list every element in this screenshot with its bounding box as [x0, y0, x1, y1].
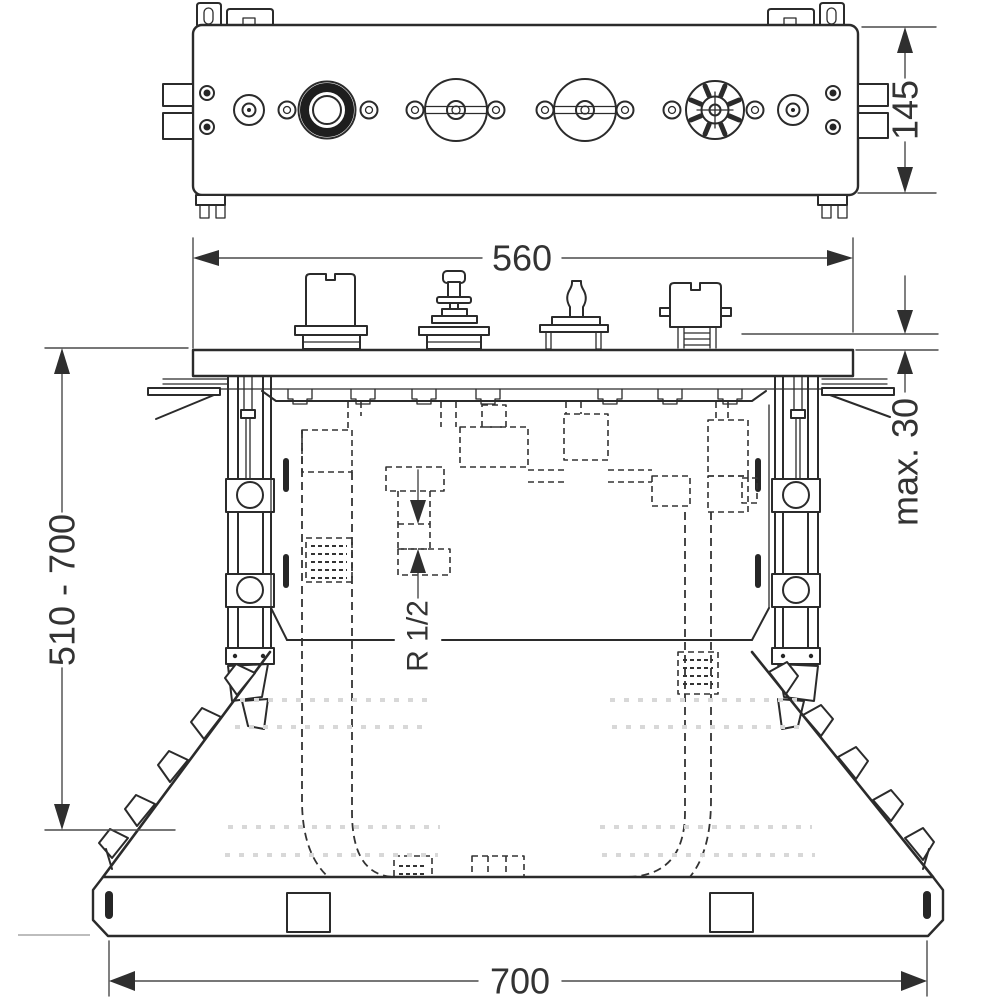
dim-thread: R 1/2: [402, 470, 435, 672]
top-view: [163, 3, 888, 218]
housing-feet: [196, 195, 847, 218]
dim-base-width: 700: [109, 941, 927, 1000]
front-view: 560: [18, 238, 943, 1000]
bracket-top-left: [227, 9, 273, 25]
dim-tile-max-label: max. 30: [885, 398, 926, 526]
dim-base-width-label: 700: [490, 961, 550, 1000]
bracket-slot-top-left: [204, 8, 213, 24]
bracket-tab-top-left: [197, 3, 221, 25]
pipe-stub-left-1: [163, 84, 193, 106]
dim-housing-height-label: 145: [885, 80, 926, 140]
dim-housing-height: 145: [858, 27, 936, 193]
back-panel: [262, 391, 769, 640]
dim-housing-width: 560: [193, 238, 853, 349]
wall-anchor-left: [148, 379, 228, 419]
pipe-stub-right-2: [858, 113, 888, 138]
skirt-ghost-hatch: [225, 700, 815, 855]
valve-spout: [295, 274, 367, 349]
valve-diverter: [540, 281, 608, 349]
dim-install-height-label: 510 - 700: [42, 514, 83, 666]
installation-diagram: 145 560: [0, 0, 1000, 1000]
valve-thermostat: [419, 271, 489, 349]
valve-shutoff: [660, 283, 731, 348]
dim-thread-label: R 1/2: [402, 600, 435, 672]
base-profile: [18, 877, 943, 936]
pipe-stub-left-2: [163, 113, 193, 139]
pipe-stub-right-1: [858, 84, 888, 106]
thread-nipple: [398, 524, 430, 549]
dim-housing-width-label: 560: [492, 238, 552, 279]
bracket-tab-top-right: [820, 3, 844, 25]
concealed-plumbing: [302, 402, 757, 924]
installation-diagram-page: 145 560: [0, 0, 1000, 1000]
carrier-plate: [193, 350, 853, 376]
wall-anchor-right: [822, 379, 894, 417]
bracket-top-right: [768, 9, 814, 25]
